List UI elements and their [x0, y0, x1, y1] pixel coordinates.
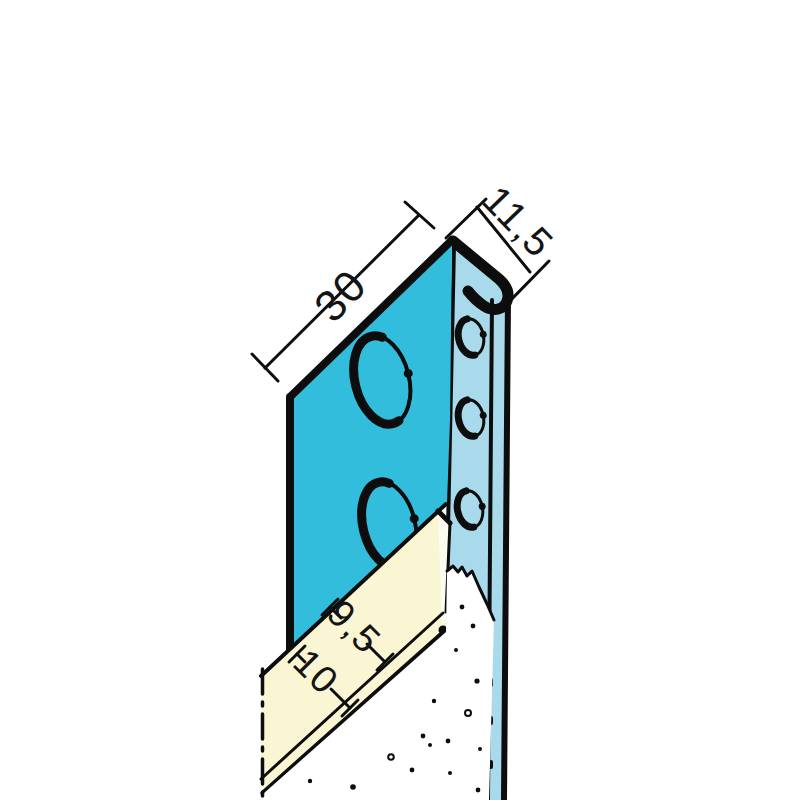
stipple-dot: [474, 678, 479, 683]
stipple-dot: [428, 743, 432, 747]
stipple-dot: [446, 739, 451, 744]
stipple-dot: [421, 734, 426, 739]
stipple-dot: [476, 788, 481, 793]
stipple-dot: [410, 768, 415, 773]
stipple-dot: [448, 771, 452, 775]
stipple-dot: [460, 605, 465, 610]
technical-drawing-page: 30 11,5 9,5 10: [0, 0, 800, 800]
web-outer-edge: [504, 298, 508, 800]
stipple-dot: [454, 648, 458, 652]
stipple-dot: [471, 624, 476, 629]
stipple-dot: [350, 784, 356, 790]
stipple-dot: [388, 754, 394, 760]
profile-cross-section-drawing: 30 11,5 9,5 10: [0, 0, 800, 800]
stipple-dot: [465, 710, 471, 716]
stipple-dot: [478, 747, 482, 751]
stipple-dot: [432, 699, 436, 703]
stipple-dot: [308, 779, 312, 783]
